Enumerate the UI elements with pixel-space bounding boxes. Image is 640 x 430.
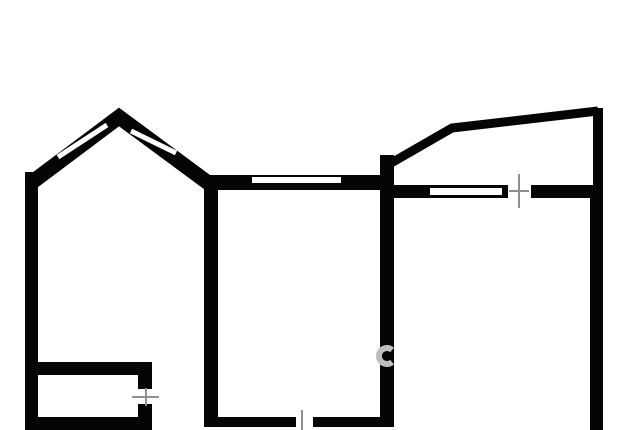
central-bottom-wall-right (313, 417, 394, 427)
floor-plan-screenshot (0, 0, 640, 430)
balcony-angled-wall (386, 111, 598, 166)
storage-door-stub-upper (138, 375, 152, 389)
central-bottom-wall-left (204, 417, 296, 427)
central-right-wall (380, 155, 394, 427)
storage-door-stub-lower (138, 404, 152, 418)
balcony-right-wall (593, 108, 603, 188)
storage-bottom-wall (25, 417, 152, 430)
storage-top-wall (38, 362, 152, 375)
central-room-left-wall (204, 176, 218, 427)
bay-peak-walls (31, 117, 211, 185)
floor-plan-drawing (0, 0, 640, 430)
right-room-top-window-slot (430, 188, 502, 195)
left-outer-wall (25, 172, 38, 430)
right-outer-wall (590, 185, 603, 430)
central-top-window-slot (252, 177, 341, 183)
